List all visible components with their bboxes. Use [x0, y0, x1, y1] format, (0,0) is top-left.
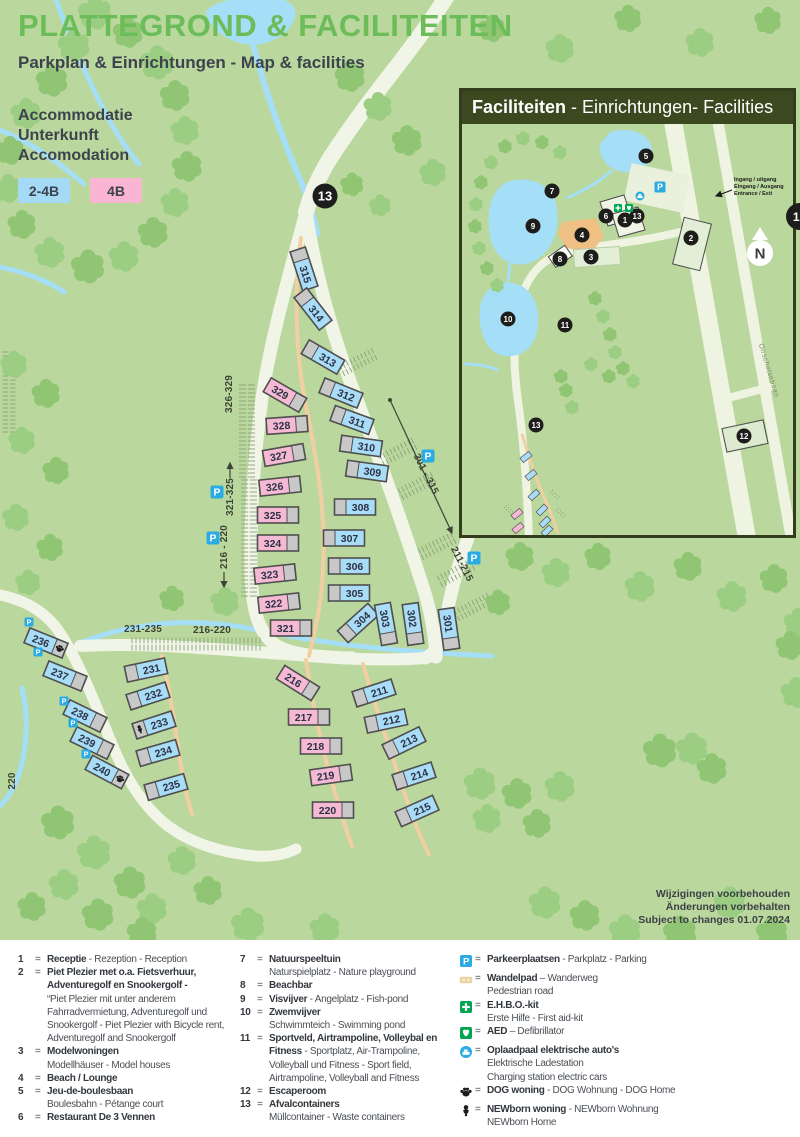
svg-text:12: 12: [740, 432, 749, 441]
house-number: 322: [264, 598, 283, 612]
legend-equals: =: [257, 1006, 269, 1032]
facility-marker-12: 12: [737, 429, 752, 444]
svg-text:1: 1: [623, 216, 628, 225]
house-306: 306: [329, 558, 370, 574]
svg-text:P: P: [471, 554, 478, 565]
legend-item-text: Oplaadpaal elektrische auto'sElektrische…: [487, 1044, 675, 1084]
svg-text:P: P: [657, 182, 663, 192]
legend-item-text: NatuurspeeltuinNaturspielplatz - Nature …: [269, 953, 437, 979]
legend-equals: =: [475, 1103, 487, 1129]
legend-item-text: Jeu-de-boulesbaanBoulesbahn - Pétange co…: [47, 1085, 224, 1111]
accommodation-badge-4B: 4B: [90, 178, 142, 203]
svg-text:P: P: [71, 719, 76, 728]
legend-equals: =: [475, 1084, 487, 1103]
house-number: 308: [352, 502, 370, 514]
inset-map: Ingang / uitgang Eingang / Ausgang Entra…: [462, 124, 793, 535]
legend-item-number: 9: [240, 993, 257, 1006]
house-number: 301: [440, 614, 454, 633]
house-325: 325: [258, 507, 299, 523]
svg-text:P: P: [210, 534, 217, 545]
legend-equals: =: [257, 1085, 269, 1098]
wandelpad-icon: [458, 972, 475, 998]
legend-item-text: DOG woning - DOG Wohnung - DOG Home: [487, 1084, 675, 1103]
house-number: 309: [363, 465, 382, 479]
facility-marker-11: 11: [558, 318, 573, 333]
facility-marker-8: 8: [553, 252, 568, 267]
inset-header: Faciliteiten - Einrichtungen- Facilities: [462, 91, 793, 124]
entrance-line-2: Eingang / Ausgang: [734, 184, 784, 190]
aed-icon: [458, 1025, 475, 1044]
house-305: 305: [329, 585, 370, 601]
legend-item-text: Piet Plezier met o.a. Fietsverhuur,Adven…: [47, 966, 224, 1045]
page-subtitle: Parkplan & Einrichtungen - Map & facilit…: [18, 53, 513, 73]
facility-markers-layer: 13: [313, 184, 338, 209]
parking-icon: P: [422, 450, 435, 463]
dog-icon: [458, 1084, 475, 1103]
legend-equals: =: [475, 953, 487, 972]
road-label: 216 - 220: [219, 525, 230, 569]
svg-text:216-220: 216-220: [193, 625, 231, 636]
compass-north-label: N: [755, 246, 766, 263]
svg-text:9: 9: [531, 222, 536, 231]
svg-text:P: P: [214, 488, 221, 499]
house-number: 324: [264, 538, 282, 550]
road-label-arrow-dot: [388, 398, 392, 402]
svg-text:6: 6: [604, 212, 609, 221]
legend-equals: =: [35, 1045, 47, 1071]
inset-header-bold: Faciliteiten: [472, 97, 566, 118]
svg-text:13: 13: [318, 189, 332, 204]
house-number: 323: [260, 569, 279, 583]
legend-item-number: 8: [240, 979, 257, 992]
legend-equals: =: [35, 953, 47, 966]
legend-item-text: AED – Defibrillator: [487, 1025, 675, 1044]
legend-item-text: Beachbar: [269, 979, 437, 992]
legend-item-text: Receptie - Rezeption - Reception: [47, 953, 224, 966]
parking-icon: P: [34, 648, 43, 657]
road-label: 220: [7, 772, 18, 790]
svg-text:P: P: [425, 452, 432, 463]
parking-icon: P: [468, 552, 481, 565]
facility-marker-7: 7: [545, 184, 560, 199]
facilities-inset: Faciliteiten - Einrichtungen- Facilities: [459, 88, 796, 538]
disclaimer: Wijzigingen voorbehoudenÄnderungen vorbe…: [638, 888, 790, 927]
legend-item-text: E.H.B.O.-kitErste Hilfe - First aid-kit: [487, 999, 675, 1025]
parking-icon: P: [655, 182, 666, 193]
legend-item-number: 1: [18, 953, 35, 966]
house-number: 307: [341, 533, 359, 545]
legend-column-2: 7=NatuurspeeltuinNaturspielplatz - Natur…: [240, 953, 437, 1125]
svg-text:2: 2: [689, 234, 694, 243]
facility-marker-13: 13: [313, 184, 338, 209]
disclaimer-line: Subject to changes 01.07.2024: [638, 914, 790, 927]
legend-equals: =: [257, 979, 269, 992]
legend-item-number: 6: [18, 1111, 35, 1124]
disclaimer-line: Wijzigingen voorbehouden: [638, 888, 790, 901]
ehbo-icon: [458, 999, 475, 1025]
road-label: 321-325: [225, 478, 236, 516]
legend-item-number: 3: [18, 1045, 35, 1071]
page: 326-329321-325216 - 220231-235216-220301…: [0, 0, 800, 1137]
legend-item-number: 4: [18, 1072, 35, 1085]
svg-text:3: 3: [589, 253, 594, 262]
road-label: 231-235: [124, 624, 162, 635]
legend-equals: =: [475, 999, 487, 1025]
aed-icon: [625, 204, 633, 212]
svg-text:231-235: 231-235: [124, 624, 162, 635]
house-number: 328: [272, 420, 290, 433]
legend-equals: =: [35, 1085, 47, 1111]
accommodation-lines: AccommodatieUnterkunftAccomodation: [18, 106, 142, 166]
svg-text:326-329: 326-329: [224, 375, 235, 413]
legend-column-icons: P=Parkeerplaatsen - Parkplatz - Parking=…: [458, 953, 675, 1129]
disclaimer-line: Änderungen vorbehalten: [638, 901, 790, 914]
parking-icon: P: [211, 486, 224, 499]
house-number: 218: [307, 741, 325, 753]
legend-item-number: 13: [240, 1098, 257, 1124]
parking-icon: P: [458, 953, 475, 972]
legend-equals: =: [35, 1111, 47, 1124]
title-block: PLATTEGROND & FACILITEITEN Parkplan & Ei…: [18, 8, 513, 73]
accommodation-line: Unterkunft: [18, 126, 142, 146]
svg-text:P: P: [84, 750, 89, 759]
ehbo-icon: [614, 204, 622, 212]
house-321: 321: [271, 620, 312, 636]
legend-column-1: 1=Receptie - Rezeption - Reception2=Piet…: [18, 953, 224, 1125]
svg-text:P: P: [62, 697, 67, 706]
legend-item-number: 5: [18, 1085, 35, 1111]
legend-item-text: Sportveld, Airtrampoline, Volleybal enFi…: [269, 1032, 437, 1085]
svg-text:13: 13: [532, 421, 541, 430]
house-number: 217: [295, 712, 313, 724]
svg-text:P: P: [27, 618, 32, 627]
legend-item-number: 7: [240, 953, 257, 979]
house-number: 310: [357, 440, 376, 454]
facility-marker-6: 6: [599, 209, 614, 224]
house-324: 324: [258, 535, 299, 551]
inset-header-rest: - Einrichtungen- Facilities: [566, 97, 773, 118]
svg-text:13: 13: [633, 212, 642, 221]
svg-text:7: 7: [550, 187, 555, 196]
svg-text:5: 5: [644, 152, 649, 161]
legend-equals: =: [35, 1072, 47, 1085]
road-label: 326-329: [224, 375, 235, 413]
legend-item-text: Wandelpad – WanderwegPedestrian road: [487, 972, 675, 998]
legend-equals: =: [35, 966, 47, 1045]
legend-item-text: Escaperoom: [269, 1085, 437, 1098]
legend-item-number: 2: [18, 966, 35, 1045]
legend-item-number: 11: [240, 1032, 257, 1085]
facility-marker-5: 5: [639, 149, 654, 164]
page-title: PLATTEGROND & FACILITEITEN: [18, 8, 513, 44]
legend-equals: =: [475, 1025, 487, 1044]
svg-text:8: 8: [558, 255, 563, 264]
facility-marker-2: 2: [684, 231, 699, 246]
legend-item-text: Parkeerplaatsen - Parkplatz - Parking: [487, 953, 675, 972]
entrance-line-3: Entrance / Exit: [734, 191, 772, 197]
house-220: 220: [313, 802, 354, 818]
svg-text:4: 4: [580, 231, 585, 240]
legend-equals: =: [475, 972, 487, 998]
legend-item-text: Beach / Lounge: [47, 1072, 224, 1085]
house-217: 217: [289, 709, 330, 725]
house-number: 326: [265, 481, 284, 495]
legend-equals: =: [257, 993, 269, 1006]
svg-text:P: P: [463, 956, 470, 967]
road-label: 216-220: [193, 625, 231, 636]
svg-text:11: 11: [561, 321, 570, 330]
parking-icon: P: [69, 719, 78, 728]
house-number: 220: [319, 805, 337, 817]
house-number: 306: [346, 561, 364, 573]
house-307: 307: [324, 530, 365, 546]
charging-icon: [458, 1044, 475, 1084]
parking-icon: P: [60, 697, 69, 706]
legend-equals: =: [257, 1098, 269, 1124]
facility-marker-4: 4: [575, 228, 590, 243]
legend-item-number: 10: [240, 1006, 257, 1032]
facility-marker-3: 3: [584, 250, 599, 265]
legend-item-text: ZwemvijverSchwimmteich - Swimming pond: [269, 1006, 437, 1032]
legend-item-text: AfvalcontainersMüllcontainer - Waste con…: [269, 1098, 437, 1124]
parking-icon: P: [25, 618, 34, 627]
newborn-icon: [458, 1103, 475, 1129]
accommodation-badge-2-4B: 2-4B: [18, 178, 70, 203]
accommodation-legend: AccommodatieUnterkunftAccomodation 2-4B4…: [18, 106, 142, 203]
svg-text:10: 10: [504, 315, 513, 324]
entrance-line-1: Ingang / uitgang: [734, 177, 776, 183]
svg-text:220: 220: [7, 772, 18, 790]
accommodation-badges: 2-4B4B: [18, 178, 142, 203]
house-218: 218: [301, 738, 342, 754]
house-308: 308: [335, 499, 376, 515]
legend-item-text: Visvijver - Angelplatz - Fish-pond: [269, 993, 437, 1006]
house-number: 305: [346, 588, 364, 600]
house-number: 219: [316, 769, 335, 783]
legend-item-text: ModelwoningenModellhäuser - Model houses: [47, 1045, 224, 1071]
legend-equals: =: [257, 1032, 269, 1085]
legend: 1=Receptie - Rezeption - Reception2=Piet…: [0, 940, 800, 1137]
facility-marker-13: 13: [529, 418, 544, 433]
charging-icon: [636, 192, 645, 201]
accommodation-line: Accommodatie: [18, 106, 142, 126]
legend-item-text: Restaurant De 3 Vennen: [47, 1111, 224, 1124]
svg-text:321-325: 321-325: [225, 478, 236, 516]
house-number: 325: [264, 510, 282, 522]
facility-marker-10: 10: [501, 312, 516, 327]
house-323: 323: [254, 564, 296, 584]
facility-marker-9: 9: [526, 219, 541, 234]
legend-equals: =: [257, 953, 269, 979]
legend-equals: =: [475, 1044, 487, 1084]
svg-text:216 - 220: 216 - 220: [219, 525, 230, 569]
parking-icon: P: [207, 532, 220, 545]
parking-icon: P: [82, 750, 91, 759]
legend-item-text: NEWborn woning - NEWborn WohnungNEWborn …: [487, 1103, 675, 1129]
house-number: 321: [277, 623, 295, 635]
house-322: 322: [258, 593, 300, 613]
house-326: 326: [259, 476, 301, 496]
accommodation-line: Accomodation: [18, 146, 142, 166]
house-328: 328: [266, 416, 308, 435]
house-number: 302: [404, 609, 418, 628]
svg-text:P: P: [36, 648, 41, 657]
legend-item-number: 12: [240, 1085, 257, 1098]
